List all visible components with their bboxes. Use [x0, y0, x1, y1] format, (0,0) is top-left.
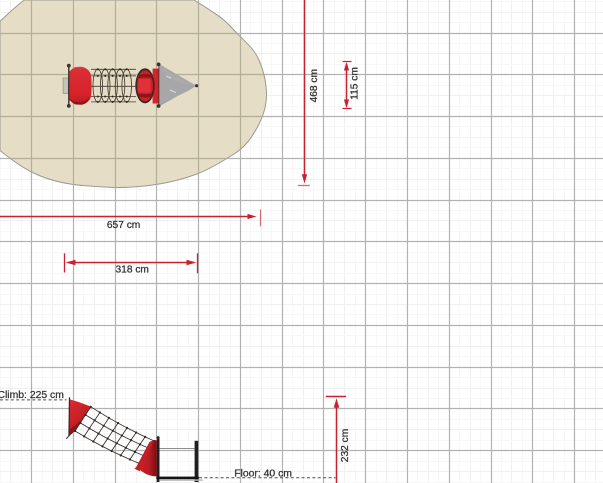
svg-text:318 cm: 318 cm — [116, 264, 149, 275]
svg-text:Climb: 225 cm: Climb: 225 cm — [0, 390, 64, 401]
svg-text:232 cm: 232 cm — [340, 429, 351, 462]
svg-text:Floor: 40 cm: Floor: 40 cm — [234, 468, 292, 479]
svg-text:468 cm: 468 cm — [309, 69, 320, 102]
svg-text:115 cm: 115 cm — [349, 67, 360, 100]
svg-text:657 cm: 657 cm — [107, 220, 140, 231]
